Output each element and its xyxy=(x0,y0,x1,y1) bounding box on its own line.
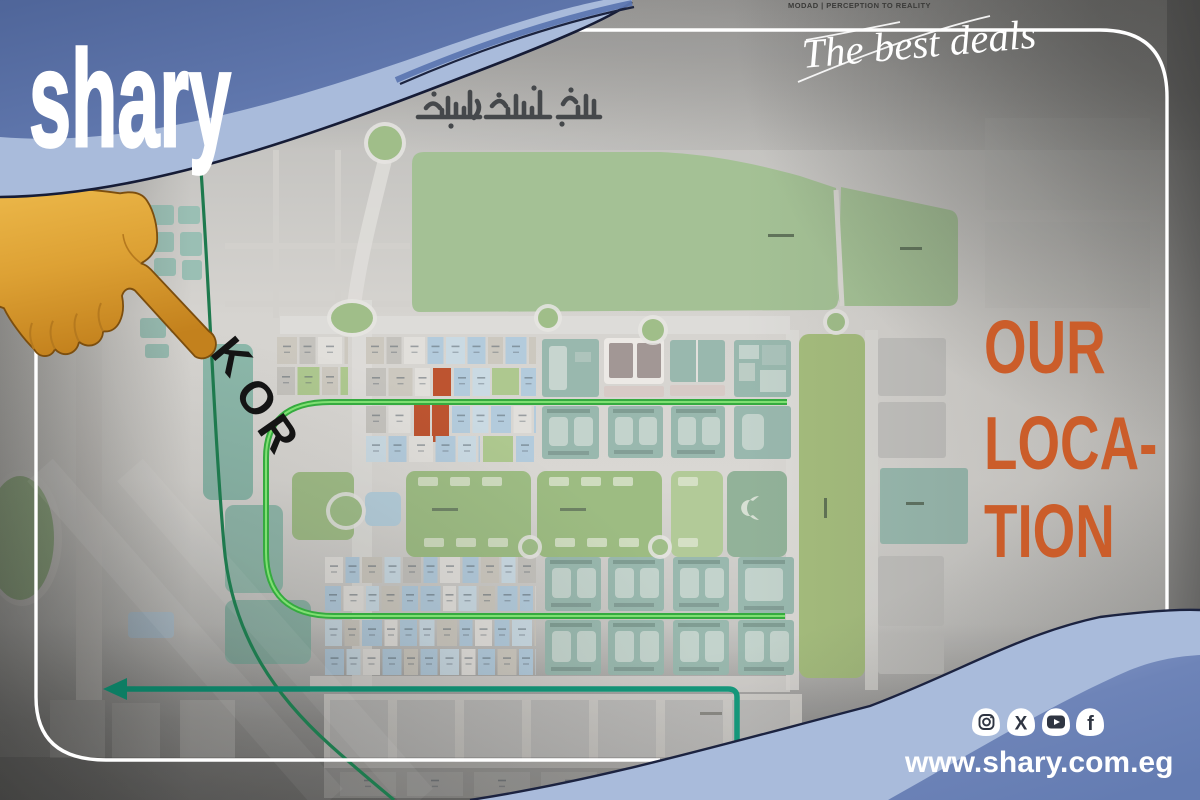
svg-text:X: X xyxy=(1015,714,1028,735)
svg-text:f: f xyxy=(1087,713,1094,735)
